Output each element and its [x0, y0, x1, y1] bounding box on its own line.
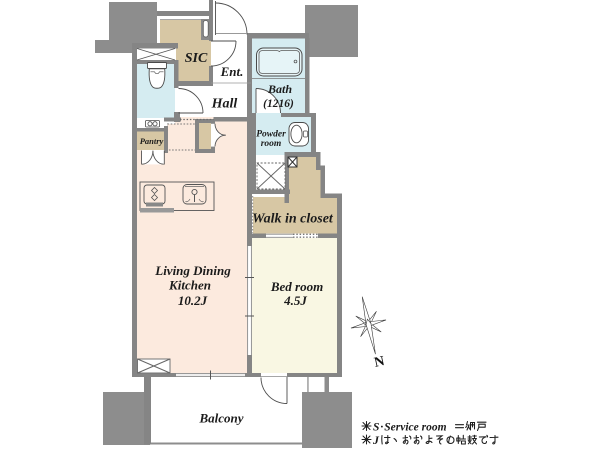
svg-text:Bed room: Bed room — [270, 279, 323, 294]
svg-text:Living Dining: Living Dining — [154, 263, 231, 278]
svg-text:Bath: Bath — [267, 82, 292, 96]
svg-text:SIC: SIC — [185, 51, 208, 66]
svg-text:Ent.: Ent. — [220, 64, 244, 79]
svg-text:J: J — [372, 433, 380, 447]
svg-text:Pantry: Pantry — [140, 136, 164, 146]
svg-text:Kitchen: Kitchen — [168, 278, 211, 293]
svg-text:S·Service room: S·Service room — [373, 422, 447, 434]
svg-text:Balcony: Balcony — [198, 411, 243, 426]
svg-text:Powder: Powder — [256, 130, 286, 140]
svg-text:(1216): (1216) — [263, 98, 294, 110]
svg-text:room: room — [261, 139, 282, 149]
svg-text:10.2J: 10.2J — [178, 293, 208, 308]
svg-text:Walk in closet: Walk in closet — [252, 212, 334, 227]
svg-text:4.5J: 4.5J — [283, 293, 307, 308]
svg-text:Hall: Hall — [211, 97, 238, 112]
